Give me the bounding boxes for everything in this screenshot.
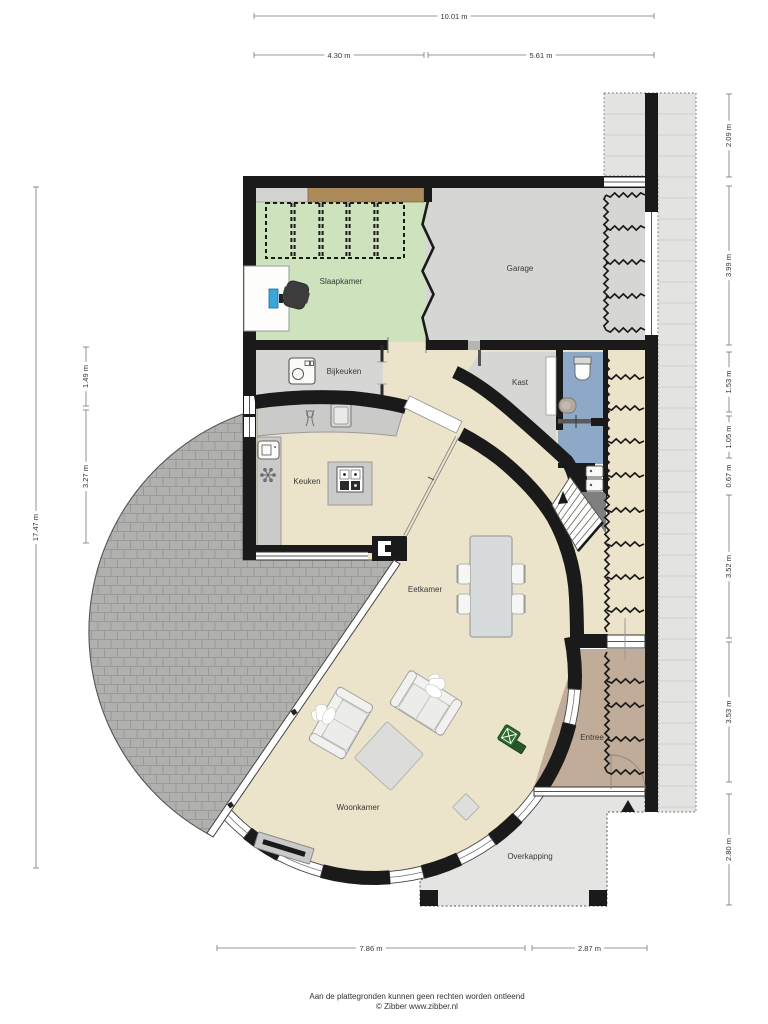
svg-text:Keuken: Keuken [293,477,320,486]
svg-text:Garage: Garage [507,264,534,273]
svg-text:2.87 m: 2.87 m [578,944,601,953]
svg-text:3.52 m: 3.52 m [724,555,733,578]
svg-text:Woonkamer: Woonkamer [337,803,380,812]
svg-text:Overkapping: Overkapping [507,852,552,861]
svg-text:4.30 m: 4.30 m [328,51,351,60]
svg-text:Kast: Kast [512,378,529,387]
svg-text:1.53 m: 1.53 m [724,371,733,394]
svg-text:Entree: Entree [580,733,604,742]
svg-text:5.61 m: 5.61 m [530,51,553,60]
svg-text:1.49 m: 1.49 m [81,365,90,388]
svg-text:Aan de plattegronden kunnen ge: Aan de plattegronden kunnen geen rechten… [309,992,524,1001]
svg-text:1.05 m: 1.05 m [724,426,733,449]
svg-text:2.09 m: 2.09 m [724,124,733,147]
svg-text:7.86 m: 7.86 m [360,944,383,953]
svg-text:© Zibber www.zibber.nl: © Zibber www.zibber.nl [376,1002,458,1011]
svg-text:Bijkeuken: Bijkeuken [327,367,362,376]
svg-text:Eetkamer: Eetkamer [408,585,443,594]
svg-text:3.99 m: 3.99 m [724,254,733,277]
svg-text:3.53 m: 3.53 m [724,701,733,724]
svg-text:0.67 m: 0.67 m [724,465,733,488]
svg-text:3.27 m: 3.27 m [81,465,90,488]
svg-text:2.80 m: 2.80 m [724,838,733,861]
svg-text:Slaapkamer: Slaapkamer [320,277,363,286]
svg-text:17.47 m: 17.47 m [31,514,40,541]
svg-text:10.01 m: 10.01 m [440,12,467,21]
